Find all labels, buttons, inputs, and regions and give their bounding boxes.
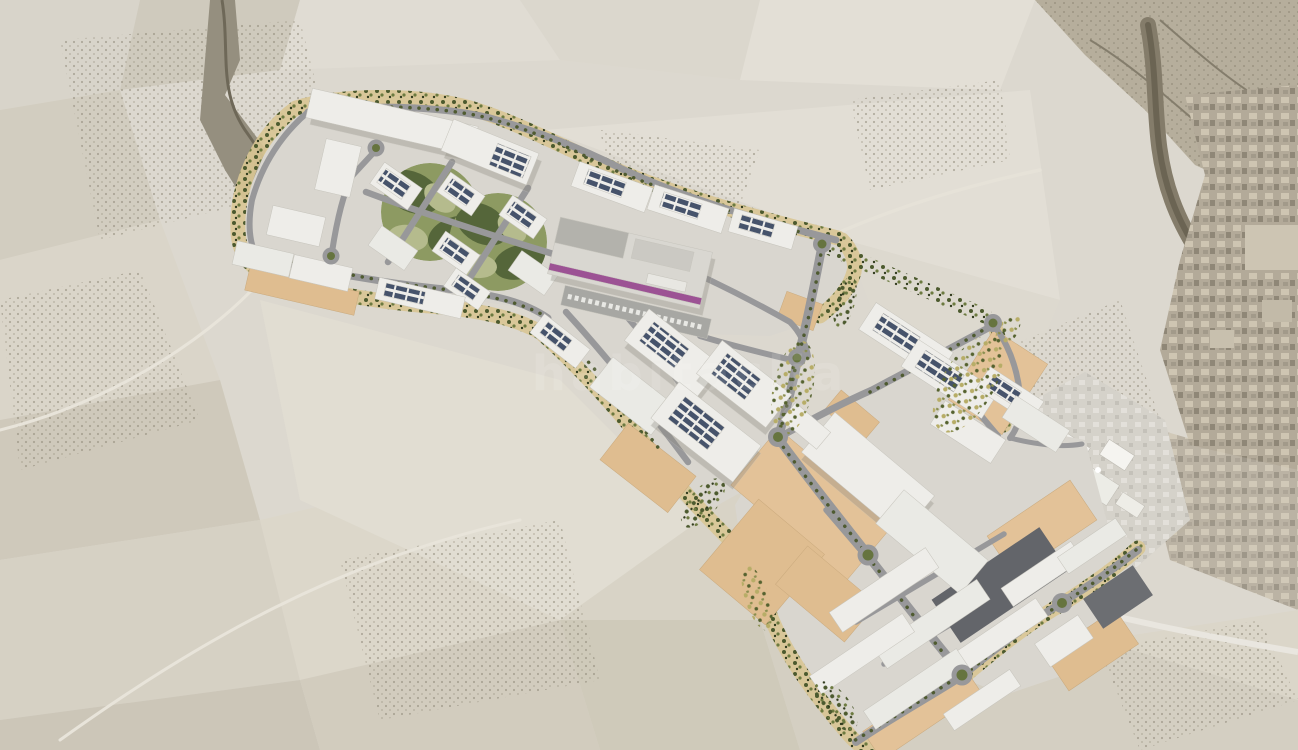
roundabout xyxy=(368,140,385,157)
masterplan-map: habitaclia xyxy=(0,0,1298,750)
roundabout xyxy=(858,545,879,566)
roundabout xyxy=(952,665,973,686)
watermark-text: habitaclia xyxy=(532,346,848,402)
factory-chimney xyxy=(1095,467,1101,473)
roundabout xyxy=(1052,593,1072,613)
roundabout xyxy=(813,235,831,253)
aerial-masterplan-screenshot: habitaclia xyxy=(0,0,1298,750)
roundabout xyxy=(323,248,340,265)
roundabout xyxy=(768,427,788,447)
roundabout xyxy=(984,314,1002,332)
